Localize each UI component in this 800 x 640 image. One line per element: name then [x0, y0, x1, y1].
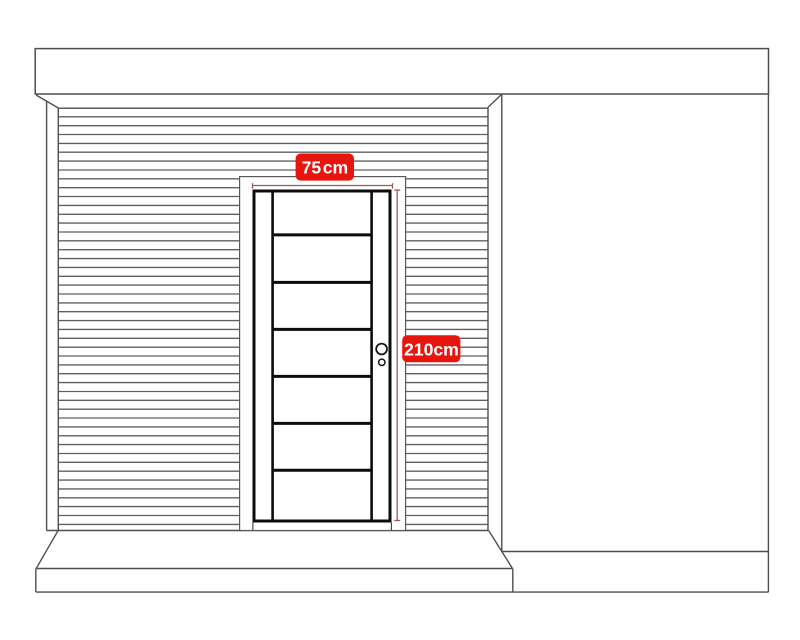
svg-text:75cm: 75cm	[302, 158, 349, 178]
svg-text:210cm: 210cm	[404, 339, 459, 359]
